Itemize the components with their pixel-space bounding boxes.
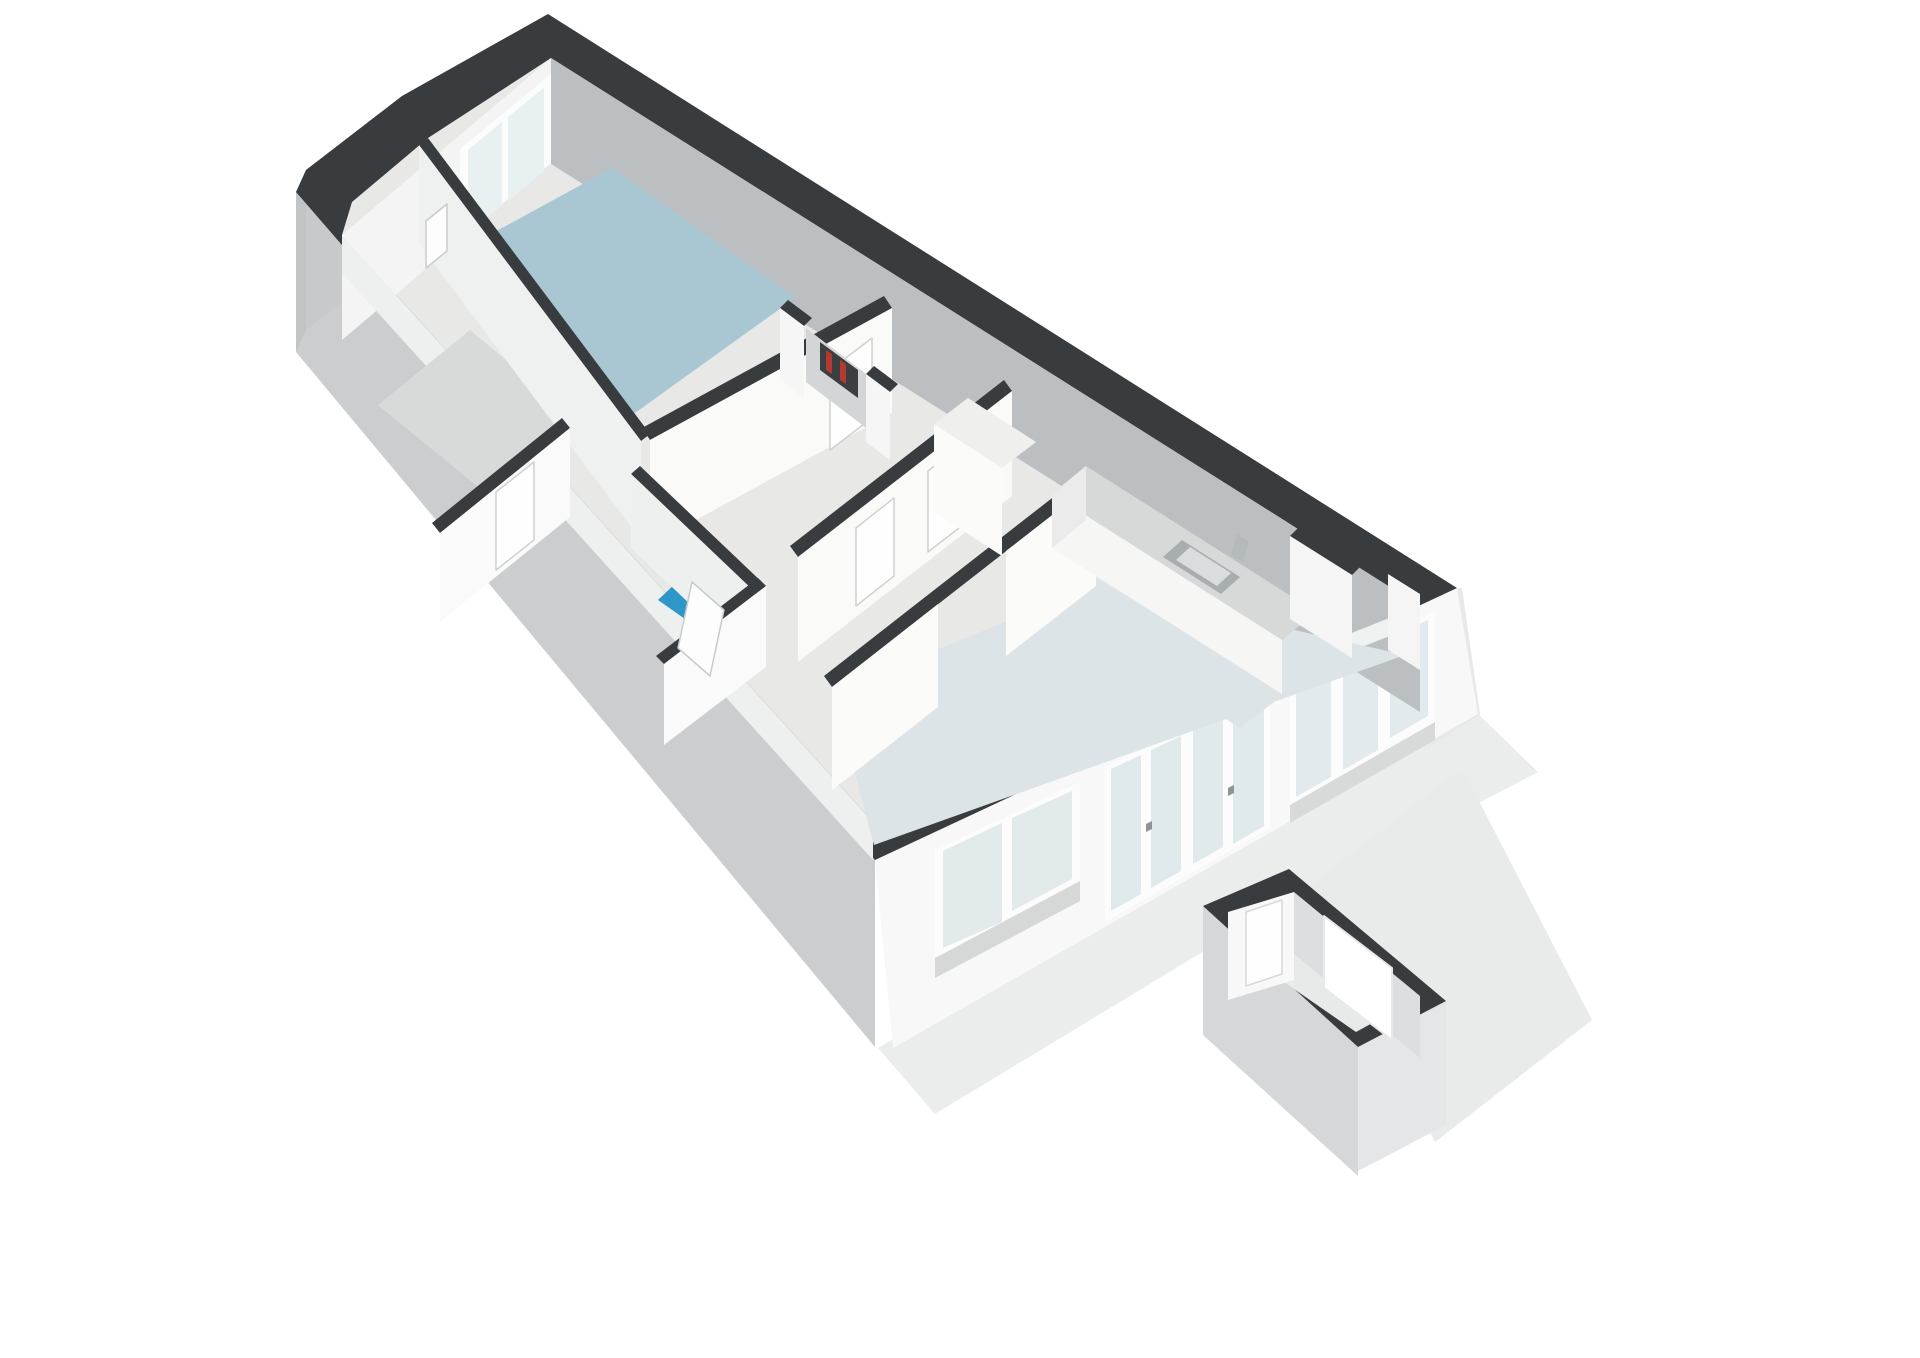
radiator-red-stripe-1 <box>826 350 832 374</box>
floorplan-stage <box>0 0 1920 1358</box>
floorplan-svg <box>0 0 1920 1358</box>
facade-french-door-glass-2 <box>1151 736 1181 888</box>
facade-french-door-glass-3 <box>1193 717 1223 864</box>
radiator-red-stripe-2 <box>840 360 846 384</box>
shed-door-leaf <box>1246 900 1282 986</box>
facade-french-door-glass-1 <box>1111 755 1141 911</box>
